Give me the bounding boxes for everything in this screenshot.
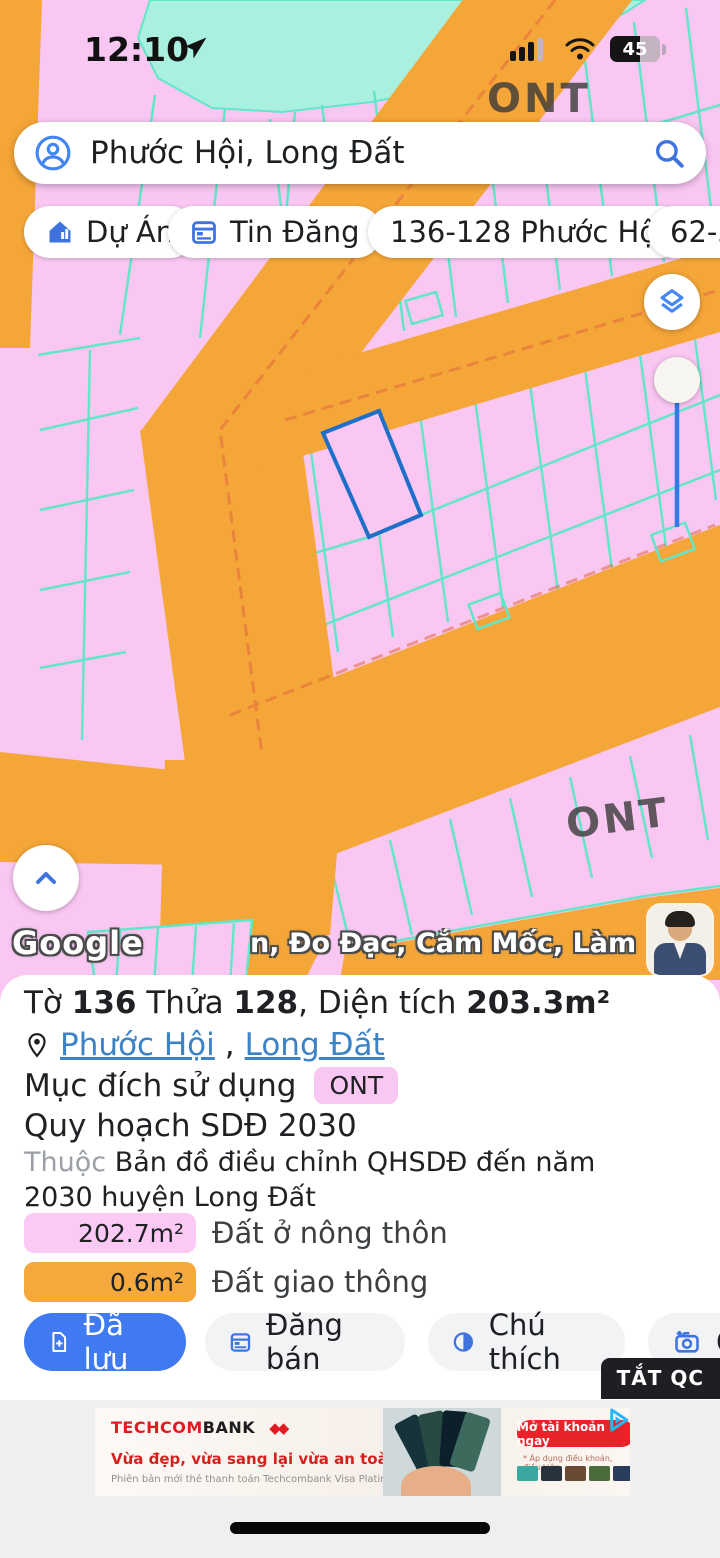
ad-subtext: Phiên bản mới thẻ thanh toán Techcombank… xyxy=(111,1474,403,1485)
map-legend-button[interactable]: Chú thích xyxy=(428,1313,625,1371)
camera-button-label: C xyxy=(716,1325,720,1359)
chip-label: Dự Án xyxy=(86,215,174,249)
legend-area: 202.7m² xyxy=(78,1219,184,1248)
calendar-icon xyxy=(229,1328,252,1356)
sheet-number: 136 xyxy=(72,985,137,1021)
parcel-title: Tờ 136 Thửa 128, Diện tích 203.3m² xyxy=(24,985,610,1021)
location-arrow-icon xyxy=(182,34,210,62)
ad-tagline: Vừa đẹp, vừa sang lại vừa an toàn xyxy=(111,1450,398,1468)
ad-banner[interactable]: TECHCOMBANK ◆◆ Vừa đẹp, vừa sang lại vừa… xyxy=(95,1408,630,1496)
ad-zone: TECHCOMBANK ◆◆ Vừa đẹp, vừa sang lại vừa… xyxy=(0,1400,720,1558)
saved-button-label: Đã lưu xyxy=(84,1308,162,1376)
dismiss-ad-button[interactable]: TẮT QC xyxy=(601,1358,720,1399)
chip-parcel-136-128[interactable]: 136-128 Phước Hội xyxy=(368,206,687,258)
ad-card-image xyxy=(383,1408,501,1496)
chip-label: Tin Đăng xyxy=(230,215,360,249)
search-bar[interactable]: Phước Hội, Long Đất xyxy=(14,122,706,184)
legend-swatch-road: 0.6m² xyxy=(24,1262,196,1302)
contrast-icon xyxy=(452,1328,475,1356)
post-sale-button[interactable]: Đăng bán xyxy=(205,1313,405,1371)
house-icon xyxy=(46,218,74,246)
techcombank-logo-icon: ◆◆ xyxy=(269,1419,286,1437)
account-icon[interactable] xyxy=(34,134,72,172)
saved-button[interactable]: Đã lưu xyxy=(24,1313,186,1371)
title-text: Tờ xyxy=(24,985,72,1021)
slider-knob[interactable] xyxy=(654,357,700,403)
layers-icon xyxy=(655,285,689,319)
ad-brand-dark: BANK xyxy=(203,1418,255,1437)
calendar-icon xyxy=(190,218,218,246)
chip-label: 62-37 xyxy=(670,215,720,249)
search-icon[interactable] xyxy=(652,136,686,170)
app-screen: ONT ONT 12:10 45 xyxy=(0,0,720,1558)
district-link[interactable]: Long Đất xyxy=(245,1027,385,1063)
title-text: Thửa xyxy=(136,985,233,1021)
map-watermark: n, Đo Đạc, Cắm Mốc, Làm Hồ Sơ xyxy=(250,928,642,959)
legend-label: Đất giao thông xyxy=(212,1265,428,1299)
status-bar: 12:10 45 xyxy=(0,28,720,72)
chevron-up-icon xyxy=(30,862,62,894)
post-sale-label: Đăng bán xyxy=(266,1308,381,1376)
usage-row: Mục đích sử dụng ONT xyxy=(24,1067,398,1104)
collapse-sheet-button[interactable] xyxy=(13,845,79,911)
chips-row: Dự Án Tin Đăng 136-128 Phước Hội 62-37 xyxy=(0,206,720,260)
planning-label: Quy hoạch SDĐ 2030 xyxy=(24,1108,357,1144)
signal-bars-icon xyxy=(510,36,550,62)
layers-button[interactable] xyxy=(644,274,700,330)
legend-area: 0.6m² xyxy=(110,1268,184,1297)
avatar[interactable] xyxy=(648,905,712,975)
home-indicator[interactable] xyxy=(230,1522,490,1534)
belongs-row: Thuộc Bản đồ điều chỉnh QHSDĐ đến năm 20… xyxy=(24,1145,672,1215)
pin-icon xyxy=(24,1030,50,1060)
ad-thumbnails xyxy=(517,1466,630,1481)
camera-plus-icon xyxy=(672,1328,702,1356)
usage-label: Mục đích sử dụng xyxy=(24,1068,296,1104)
google-logo: Google xyxy=(12,924,144,962)
wifi-icon xyxy=(564,36,596,62)
legend-swatch-residential: 202.7m² xyxy=(24,1213,196,1253)
ad-brand-red: TECHCOM xyxy=(111,1418,203,1437)
chip-tin-dang[interactable]: Tin Đăng xyxy=(168,206,382,258)
chip-label: 136-128 Phước Hội xyxy=(390,215,665,249)
map-legend-label: Chú thích xyxy=(489,1308,601,1376)
parcel-area: 203.3m² xyxy=(466,985,610,1021)
parcel-number: 128 xyxy=(233,985,298,1021)
parcel-info-sheet: Tờ 136 Thửa 128, Diện tích 203.3m² Phước… xyxy=(0,975,720,1400)
adchoices-icon[interactable] xyxy=(603,1408,630,1435)
ward-link[interactable]: Phước Hội xyxy=(60,1027,215,1063)
usage-badge: ONT xyxy=(314,1067,398,1104)
zone-label-ont-top: ONT xyxy=(487,76,591,122)
status-time: 12:10 xyxy=(84,30,189,69)
title-text: , Diện tích xyxy=(298,985,466,1021)
ad-brand: TECHCOMBANK ◆◆ xyxy=(111,1418,286,1437)
belongs-label: Thuộc xyxy=(24,1147,106,1178)
legend-row-residential: 202.7m² Đất ở nông thôn xyxy=(24,1213,448,1253)
document-plus-icon xyxy=(48,1328,70,1356)
search-input[interactable]: Phước Hội, Long Đất xyxy=(90,135,652,171)
battery-icon: 45 xyxy=(610,36,660,62)
belongs-value: Bản đồ điều chỉnh QHSDĐ đến năm 2030 huy… xyxy=(24,1147,595,1213)
chip-parcel-62-37[interactable]: 62-37 xyxy=(648,206,720,258)
legend-row-road: 0.6m² Đất giao thông xyxy=(24,1262,428,1302)
location-separator: , xyxy=(225,1027,235,1063)
battery-percent: 45 xyxy=(610,36,660,62)
location-row: Phước Hội, Long Đất xyxy=(24,1027,385,1063)
legend-label: Đất ở nông thôn xyxy=(212,1216,448,1250)
